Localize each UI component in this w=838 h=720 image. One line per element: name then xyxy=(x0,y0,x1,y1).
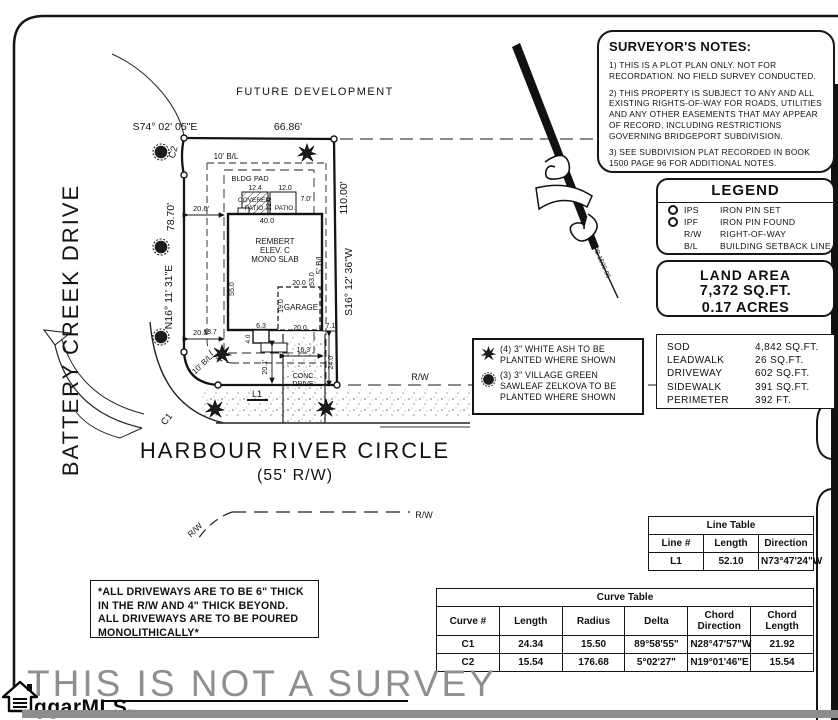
surveyors-notes-box: SURVEYOR'S NOTES: 1) THIS IS A PLOT PLAN… xyxy=(597,30,835,173)
line-table: Line Table Line # Length Direction L1 52… xyxy=(648,516,814,571)
legend-row-rw: R/W RIGHT-OF-WAY xyxy=(668,229,833,239)
land-area-box: LAND AREA 7,372 SQ.FT. 0.17 ACRES xyxy=(656,260,835,317)
dim-40-0: 40.0 xyxy=(260,216,275,225)
west-distance-label: 78.70' xyxy=(165,203,177,231)
legend-abbr: B/L xyxy=(684,241,720,251)
line-table-row: L1 52.10 N73°47'24"W xyxy=(649,553,814,571)
area-name: SIDEWALK xyxy=(667,381,755,394)
zelkova-icon xyxy=(480,370,500,391)
areas-box: SOD 4,842 SQ.FT. LEADWALK 26 SQ.FT. DRIV… xyxy=(656,334,835,409)
curve-table-header: Curve # xyxy=(437,607,500,636)
dim-20-6: 20.6' xyxy=(193,204,210,213)
planting-note-ash-text: (4) 3" WHITE ASH TO BE PLANTED WHERE SHO… xyxy=(500,344,638,366)
surveyors-note-1: 1) THIS IS A PLOT PLAN ONLY. NOT FOR REC… xyxy=(609,60,825,82)
conc-drive-label-1: CONC. xyxy=(293,373,316,380)
legend-abbr: IPS xyxy=(684,205,720,215)
top-distance-label: 66.86' xyxy=(274,121,302,133)
area-value: 4,842 SQ.FT. xyxy=(755,341,819,354)
iron-pin-set-icon xyxy=(668,205,684,215)
curve-chord-length: 21.92 xyxy=(751,636,814,654)
area-name: LEADWALK xyxy=(667,354,755,367)
iron-pin-found-icon xyxy=(668,217,684,227)
legend-title: LEGEND xyxy=(658,180,833,203)
west-bearing-label: N16° 11' 31"E xyxy=(163,265,175,330)
legend-box: LEGEND IPS IRON PIN SET IPF IRON PIN FOU… xyxy=(656,178,835,255)
setback-10bl-corner-label: 10' B/L xyxy=(190,352,214,376)
curve-table-header-row: Curve # Length Radius Delta Chord Direct… xyxy=(437,607,814,636)
legend-desc: IRON PIN SET xyxy=(720,205,781,215)
line-table-header: Length xyxy=(704,535,759,553)
dim-6-3: 6.3 xyxy=(256,323,266,330)
garage-label: GARAGE xyxy=(284,303,318,312)
curve-length: 15.54 xyxy=(499,654,562,672)
street-rw-label: (55' R/W) xyxy=(257,467,333,484)
dim-16-3: 16.3' xyxy=(297,347,312,354)
cut-box-corner-bottom xyxy=(817,489,831,720)
bottom-gray-bar xyxy=(22,710,838,718)
planting-note-zelkova-text: (3) 3" VILLAGE GREEN SAWLEAF ZELKOVA TO … xyxy=(500,370,638,403)
planting-note-ash: (4) 3" WHITE ASH TO BE PLANTED WHERE SHO… xyxy=(480,344,638,366)
area-value: 392 FT. xyxy=(755,394,791,407)
land-area-acres: 0.17 ACRES xyxy=(658,300,833,317)
planting-note-zelkova: (3) 3" VILLAGE GREEN SAWLEAF ZELKOVA TO … xyxy=(480,370,638,403)
dim-20-0-garage-front: 20.0 xyxy=(293,325,307,332)
rw-lower-right-label: R/W xyxy=(415,510,433,520)
land-area-sqft: 7,372 SQ.FT. xyxy=(658,283,833,300)
rw-lower-left-label: R/W xyxy=(185,521,204,540)
curve-table-header: Radius xyxy=(562,607,625,636)
area-row-driveway: DRIVEWAY 602 SQ.FT. xyxy=(667,367,834,380)
legend-desc: IRON PIN FOUND xyxy=(720,217,795,227)
plat-book-label: PB 1500-96 xyxy=(591,245,612,280)
house-footprint xyxy=(228,192,322,352)
curve-id: C1 xyxy=(437,636,500,654)
curve-c1-label: C1 xyxy=(159,411,175,427)
house-slab-label: MONO SLAB xyxy=(251,255,299,264)
bldg-pad-label: BLDG PAD xyxy=(231,174,269,183)
white-ash-icon xyxy=(480,344,500,365)
setback-5bl-label: 5' B/L xyxy=(315,253,324,274)
conc-drive-label-2: DRIVE. xyxy=(292,381,315,388)
surveyors-notes-title: SURVEYOR'S NOTES: xyxy=(609,39,833,54)
area-row-leadwalk: LEADWALK 26 SQ.FT. xyxy=(667,354,834,367)
line-l1-label: L1 xyxy=(252,389,262,399)
planting-notes-box: (4) 3" WHITE ASH TO BE PLANTED WHERE SHO… xyxy=(472,338,644,415)
area-name: PERIMETER xyxy=(667,394,755,407)
plot-plan-sheet: FUTURE DEVELOPMENT BATTERY CREEK DRIVE S… xyxy=(0,0,838,720)
street-label-battery-creek: BATTERY CREEK DRIVE xyxy=(58,184,83,476)
street-name-label: HARBOUR RIVER CIRCLE xyxy=(140,438,450,463)
area-name: DRIVEWAY xyxy=(667,367,755,380)
area-value: 602 SQ.FT. xyxy=(755,367,810,380)
line-table-header: Line # xyxy=(649,535,704,553)
line-table-title: Line Table xyxy=(649,517,814,535)
dim-55-0: 55.0 xyxy=(229,282,236,296)
driveway-note-text: *ALL DRIVEWAYS ARE TO BE 6" THICK IN THE… xyxy=(98,586,304,639)
dim-12-0: 12.0 xyxy=(278,185,292,192)
surveyors-note-2: 2) THIS PROPERTY IS SUBJECT TO ANY AND A… xyxy=(609,88,825,142)
white-ash-tree xyxy=(298,144,316,161)
future-development-label: FUTURE DEVELOPMENT xyxy=(236,86,394,98)
rw-front-label: R/W xyxy=(411,372,429,382)
dim-19-0: 19.0 xyxy=(278,299,285,313)
curve-radius: 15.50 xyxy=(562,636,625,654)
surveyors-note-3: 3) SEE SUBDIVISION PLAT RECORDED IN BOOK… xyxy=(609,147,825,169)
curve-table-header: Delta xyxy=(625,607,688,636)
curve-delta: 89°58'55" xyxy=(625,636,688,654)
legend-row-ips: IPS IRON PIN SET xyxy=(668,205,833,215)
cut-box-corner-top xyxy=(817,402,831,459)
curve-delta: 5°02'27" xyxy=(625,654,688,672)
top-bearing-label: S74° 02' 05"E xyxy=(133,121,198,133)
legend-abbr: IPF xyxy=(684,217,720,227)
curve-table-header: Chord Direction xyxy=(688,607,751,636)
curve-table-title: Curve Table xyxy=(437,589,814,607)
line-length: 52.10 xyxy=(704,553,759,571)
legend-row-ipf: IPF IRON PIN FOUND xyxy=(668,217,833,227)
curve-chord-direction: N28°47'57"W xyxy=(688,636,751,654)
setback-10bl-top-label: 10' B/L xyxy=(214,152,239,161)
area-row-sod: SOD 4,842 SQ.FT. xyxy=(667,341,834,354)
dim-53-0: 53.0 xyxy=(309,272,316,286)
patio-label: PATIO. xyxy=(275,205,296,212)
dim-20-0-garage-top: 20.0 xyxy=(292,280,306,287)
area-row-sidewalk: SIDEWALK 391 SQ.FT. xyxy=(667,381,834,394)
area-value: 26 SQ.FT. xyxy=(755,354,804,367)
land-area-title: LAND AREA xyxy=(658,267,833,283)
legend-desc: RIGHT-OF-WAY xyxy=(720,229,786,239)
dim-20-5: 20.5' xyxy=(193,328,210,337)
curve-radius: 176.68 xyxy=(562,654,625,672)
east-bearing-label: S16° 12' 36"W xyxy=(343,248,355,316)
area-value: 391 SQ.FT. xyxy=(755,381,810,394)
curve-table-row: C1 24.34 15.50 89°58'55" N28°47'57"W 21.… xyxy=(437,636,814,654)
house-elev-label: ELEV. C xyxy=(260,246,290,255)
curve-table-header: Chord Length xyxy=(751,607,814,636)
covered-patio-label-1: COVERED xyxy=(238,197,270,204)
dim-20-1: 20.1' xyxy=(262,360,269,375)
legend-abbr: R/W xyxy=(684,229,720,239)
curve-chord-direction: N19°01'46"E xyxy=(688,654,751,672)
house-name-label: REMBERT xyxy=(256,237,295,246)
legend-row-bl: B/L BUILDING SETBACK LINE xyxy=(668,241,833,251)
dim-7-0: 7.0' xyxy=(300,196,311,203)
dim-4-0: 4.0 xyxy=(245,334,252,343)
logo-underline xyxy=(103,700,408,702)
curve-c2-label: C2 xyxy=(167,145,181,160)
curve-table-header: Length xyxy=(499,607,562,636)
legend-desc: BUILDING SETBACK LINE xyxy=(720,241,831,251)
line-table-header: Direction xyxy=(759,535,814,553)
line-id: L1 xyxy=(649,553,704,571)
curve-chord-length: 15.54 xyxy=(751,654,814,672)
curve-table: Curve Table Curve # Length Radius Delta … xyxy=(436,588,814,672)
dim-12-4: 12.4 xyxy=(248,185,262,192)
driveway-note-box: *ALL DRIVEWAYS ARE TO BE 6" THICK IN THE… xyxy=(90,580,319,638)
line-direction: N73°47'24"W xyxy=(759,553,814,571)
dim-7-1: 7.1' xyxy=(325,323,336,330)
area-name: SOD xyxy=(667,341,755,354)
area-row-perimeter: PERIMETER 392 FT. xyxy=(667,394,834,407)
east-distance-label: 110.00' xyxy=(338,181,350,214)
covered-patio-label-2: PATIO xyxy=(245,205,264,212)
dim-24-0: 24.0' xyxy=(328,355,335,370)
curve-length: 24.34 xyxy=(499,636,562,654)
